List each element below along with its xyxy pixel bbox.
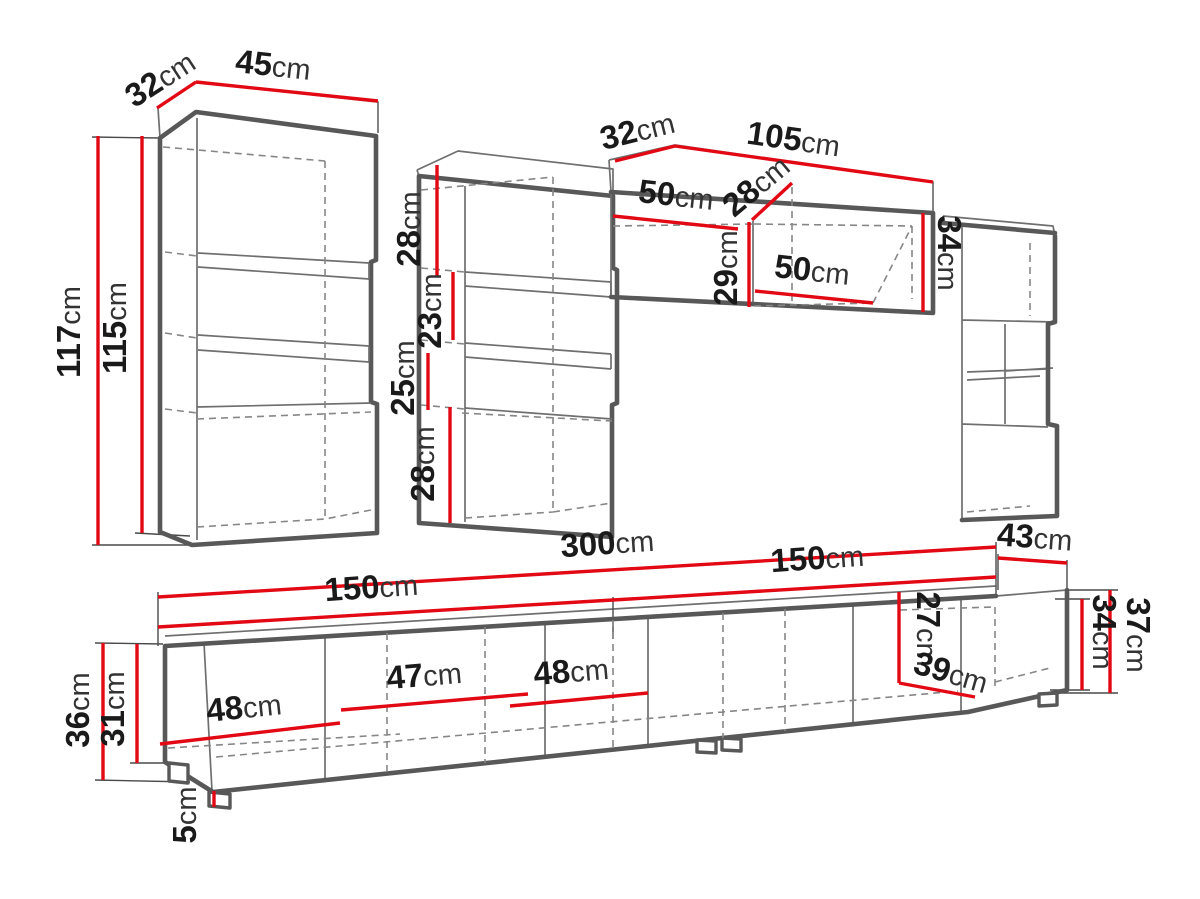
furniture-dimension-diagram: 32cm 45cm 117cm 115cm 28cm 23cm 25cm 28c… [0, 0, 1200, 899]
dim-tv-stand-right-half-width: 150cm [769, 536, 865, 579]
dim-tv-stand-total-width: 300cm [559, 521, 655, 564]
dim-left-cabinet-inner-height: 115cm [96, 282, 133, 374]
dim-tv-stand-leg-height: 5cm [166, 786, 203, 843]
dim-middle-cabinet-section1: 28cm [390, 191, 427, 266]
dim-tv-stand-inner-height-right2: 34cm [1086, 594, 1123, 669]
dim-tv-stand-height-left: 36cm [59, 672, 96, 747]
dim-middle-cabinet-section2: 23cm [411, 273, 448, 348]
dim-middle-cabinet-section3: 25cm [384, 340, 421, 415]
dim-tv-stand-inner-height-left: 31cm [94, 671, 131, 746]
dim-middle-cabinet-section4: 28cm [404, 426, 441, 501]
dim-left-cabinet-height: 117cm [50, 286, 87, 378]
diagram-canvas: 32cm 45cm 117cm 115cm 28cm 23cm 25cm 28c… [0, 0, 1200, 899]
dim-tv-stand-left-half-width: 150cm [323, 565, 419, 608]
dim-tv-stand-height-right: 37cm [1120, 597, 1157, 672]
dim-wall-cabinet-opening-height: 29cm [707, 230, 744, 305]
dim-wall-cabinet-height: 34cm [931, 215, 968, 290]
